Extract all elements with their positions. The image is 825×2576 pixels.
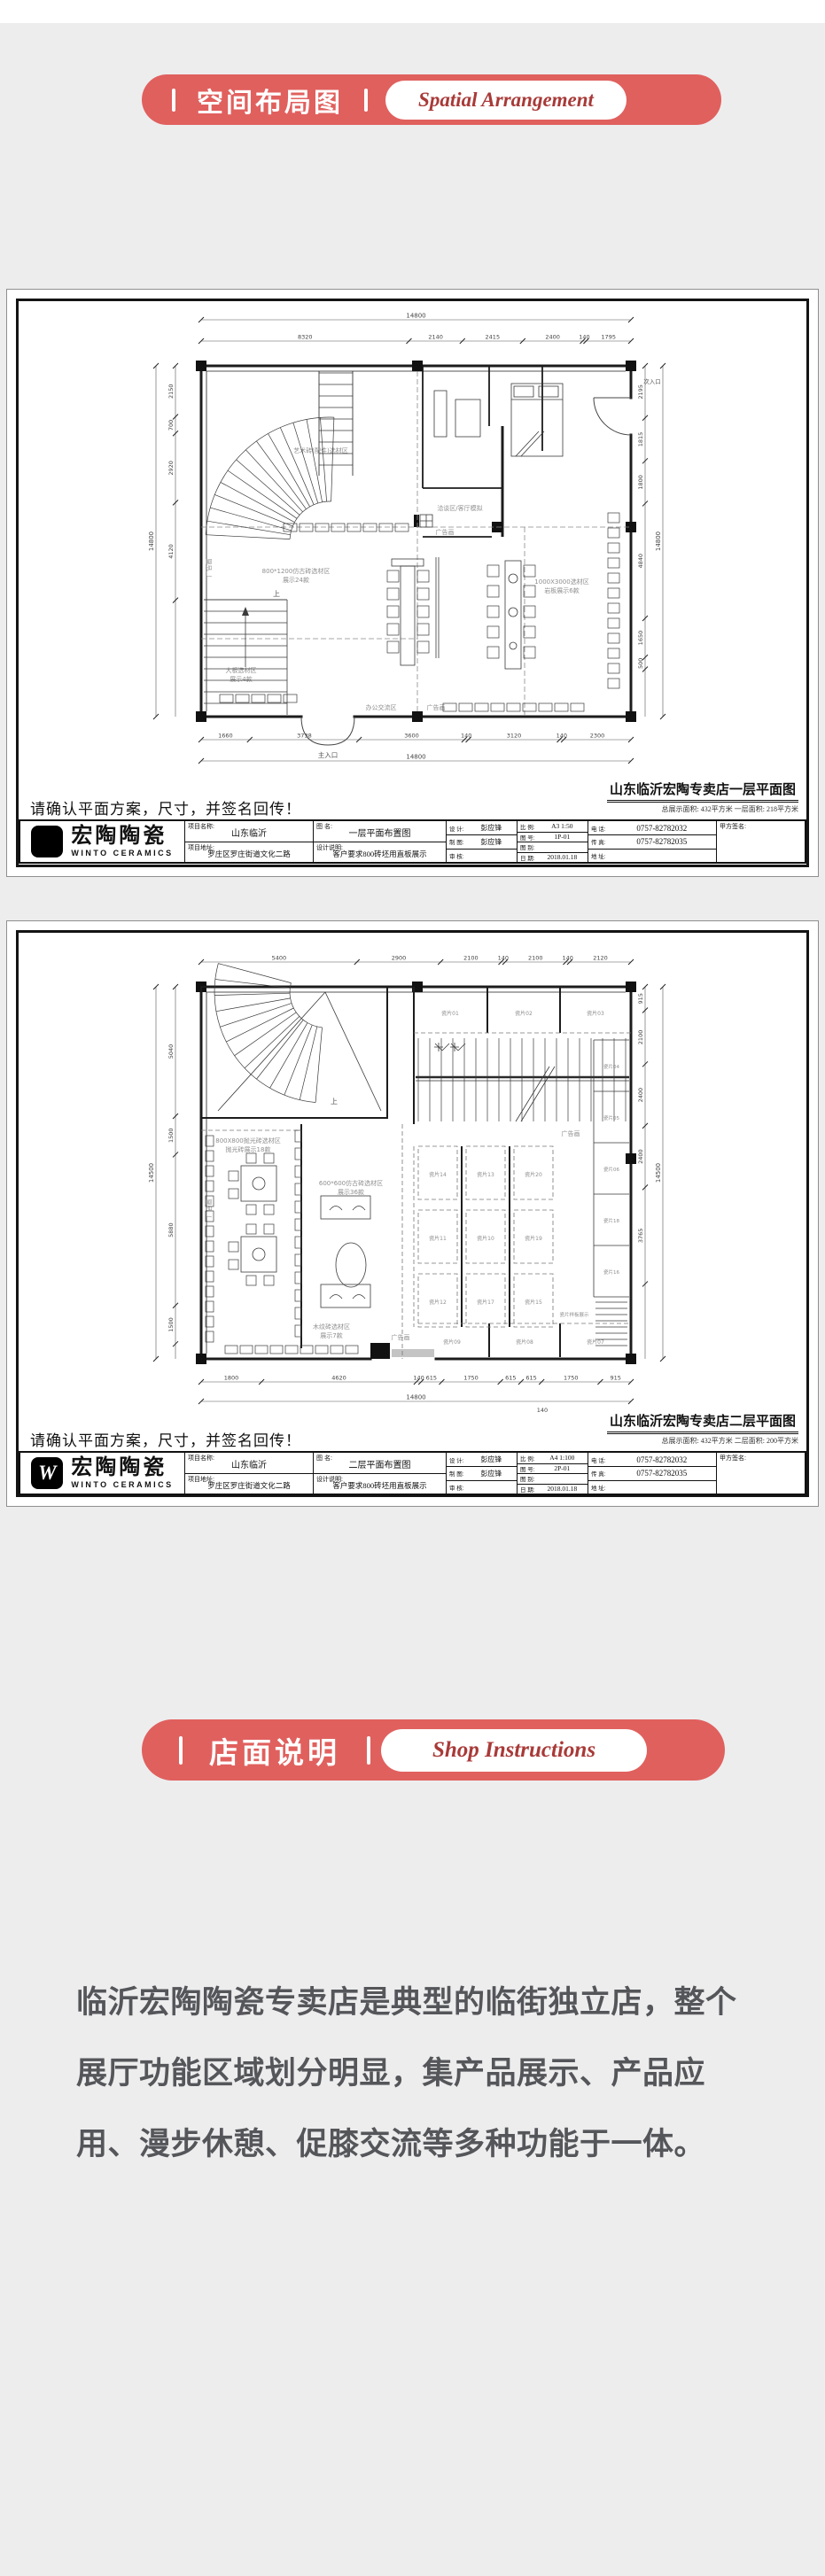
entry-label: 次入口: [643, 377, 661, 385]
display-racks: [225, 1346, 358, 1354]
sheet-no-value: 2P-01: [537, 1464, 588, 1472]
field-label: 审 核:: [449, 1483, 464, 1492]
zone-label: 800X800抛光砖选材区: [215, 1137, 281, 1144]
dim-label: 2415: [486, 334, 501, 341]
dim-label: 2100: [637, 1030, 644, 1045]
dim-label: 5400: [272, 955, 287, 962]
dimension-chain: 14500: [655, 984, 665, 1362]
company-name-en: WINTO CERAMICS: [71, 849, 173, 857]
shop-description: 临沂宏陶陶瓷专卖店是典型的临街独立店，整个 展厅功能区域划分明显，集产品展示、产…: [76, 1967, 776, 2180]
zone-label: 抛光砖展示18款: [226, 1145, 271, 1153]
field-label: 图 别:: [520, 842, 535, 851]
dimension-chain: 54002900210014021001402120: [198, 955, 634, 966]
zone-label: 大板选材区: [226, 666, 257, 674]
banner-title-en-pill: Shop Instructions: [381, 1729, 647, 1772]
walls: [201, 987, 631, 1359]
dim-label: 5040: [167, 1044, 175, 1059]
banner-title-zh: 空间布局图: [197, 81, 343, 120]
booth-label: 瓷片12: [429, 1299, 447, 1306]
dim-label: 2400: [637, 1088, 644, 1103]
field-label: 项目名称:: [188, 1454, 214, 1463]
zone-label: 瓷片样板展示: [559, 1311, 589, 1318]
dim-label: 14800: [406, 1394, 425, 1401]
dim-label: 4120: [167, 544, 175, 559]
banner-title-zh: 店面说明: [209, 1729, 340, 1772]
field-label: 制 图:: [449, 837, 464, 846]
dimension-chain: 9152100240024003765: [637, 984, 648, 1359]
booth-label: 瓷片20: [525, 1171, 542, 1178]
dim-label: 14800: [406, 313, 425, 320]
booth-label: 瓷片03: [587, 1010, 604, 1017]
dim-label: 4840: [637, 554, 644, 569]
field-label: 比 例:: [520, 822, 535, 831]
field-label: 地 址:: [591, 1483, 606, 1492]
entry-label: 主入口: [318, 750, 339, 759]
divider-bar: [179, 1736, 183, 1765]
booth-label: 瓷片14: [429, 1171, 447, 1178]
field-label: 电 话:: [591, 1455, 606, 1464]
field-label: 传 真:: [591, 1469, 606, 1478]
stair-fan: [214, 964, 322, 1103]
column: [370, 1343, 390, 1359]
dim-label: 2140: [428, 334, 443, 341]
date-value: 2018.01.18: [537, 1485, 588, 1493]
dim-label: 2195: [637, 384, 644, 400]
page: 空间布局图 Spatial Arrangement: [0, 0, 825, 2576]
dim-label: 14500: [655, 1163, 662, 1183]
dimension-chain: 14500: [148, 984, 159, 1362]
floor-plan-1: 艺术砖(配件)选材区 洽谈区/客厅模拟 广告画 800*1200仿古砖选材区 展…: [19, 302, 804, 786]
dim-label: 1815: [637, 432, 644, 447]
divider-bar: [172, 89, 175, 112]
company-name-zh: 宏陶陶瓷: [71, 826, 173, 847]
booth-label: 瓷片10: [477, 1235, 494, 1242]
dim-label: 2150: [167, 384, 175, 399]
top-white-strip: [0, 0, 825, 23]
zone-label: 广告画: [392, 1333, 410, 1341]
booth-label: 瓷片06: [603, 1166, 619, 1173]
drawing-subtitle: 总展示面积: 432平方米 一层面积: 218平方米: [607, 804, 798, 814]
dim-label: 500: [637, 658, 644, 669]
dim-label: 1750: [564, 1375, 579, 1382]
zone-label: 岩板展示6款: [544, 586, 579, 594]
booth-label: 瓷片15: [525, 1299, 542, 1306]
winto-logo-icon: W: [31, 1457, 63, 1489]
field-label: 图 号:: [520, 1464, 535, 1473]
field-label: 设 计:: [449, 824, 464, 833]
field-label: 设计说明:: [316, 1475, 343, 1484]
zone-label: 广告画: [427, 703, 446, 711]
dim-label: 1650: [637, 631, 644, 646]
field-label: 项目地址:: [188, 843, 214, 852]
confirm-note: 请确认平面方案，尺寸，并签名回传！: [30, 796, 301, 819]
zone-label: 洽谈区/客厅模拟: [437, 504, 482, 512]
field-label: 制 图:: [449, 1469, 464, 1478]
display-racks: [295, 1130, 301, 1337]
dimension-chain: 1800462014061517506156151750915: [198, 1375, 634, 1385]
doors: [301, 398, 631, 745]
field-label: 项目名称:: [188, 822, 214, 831]
drawing-title-block: 山东临沂宏陶专卖店一层平面图 总展示面积: 432平方米 一层面积: 218平方…: [607, 780, 798, 814]
field-label: 图 名:: [316, 1454, 332, 1463]
dim-label: 3738: [297, 733, 312, 740]
stair-treads: [595, 1302, 627, 1346]
dimension-chain: 21951815180048401650500: [637, 363, 648, 717]
fax-value: 0757-82782035: [608, 837, 716, 846]
stair-up-label: 上: [331, 1098, 338, 1106]
field-label: 项目地址:: [188, 1475, 214, 1484]
zone-label: 展示24款: [283, 576, 309, 584]
dim-label: 14800: [148, 531, 155, 551]
dim-label: 2300: [590, 733, 605, 740]
display-racks: [284, 524, 409, 531]
field-label: 设 计:: [449, 1455, 464, 1464]
dim-label: 1660: [218, 733, 233, 740]
booth-label: 瓷片11: [429, 1235, 447, 1242]
designer-value: 彭应锋: [466, 1455, 517, 1464]
description-line: 展厅功能区域划分明显，集产品展示、产品应: [76, 2038, 776, 2109]
dim-label: 8320: [298, 334, 313, 341]
booth-label: 瓷片02: [515, 1010, 533, 1017]
partition-dashed: [201, 371, 631, 717]
dim-label: 2120: [593, 955, 608, 962]
dimension-chain: 14800: [148, 363, 159, 719]
display-racks: [608, 513, 619, 688]
partition-dashed: [201, 1033, 631, 1359]
field-label: 传 真:: [591, 837, 606, 846]
field-label: 图 别:: [520, 1474, 535, 1483]
dimension-chain: 14800: [198, 1394, 634, 1405]
banner-shop-instructions: 店面说明 Shop Instructions: [142, 1719, 725, 1781]
dim-label: 1795: [601, 334, 616, 341]
drafter-value: 彭应锋: [466, 837, 517, 847]
chairs: [229, 1153, 274, 1285]
furniture: [218, 992, 629, 1307]
dim-label: 1500: [167, 1317, 175, 1332]
scale-value: A4 1:100: [537, 1454, 588, 1462]
interior-walls: [319, 366, 542, 537]
booth-label: 瓷片08: [516, 1338, 533, 1346]
winto-logo-icon: [31, 826, 63, 857]
dim-label: 4620: [331, 1375, 346, 1382]
phone-value: 0757-82782032: [608, 824, 716, 833]
phone-value: 0757-82782032: [608, 1455, 716, 1464]
drawing-subtitle: 总展示面积: 432平方米 二层面积: 200平方米: [607, 1436, 798, 1446]
zone-label: 600*600仿古砖选材区: [319, 1179, 383, 1187]
field-label: 甲方签名:: [720, 822, 746, 831]
dimension-chain: 14800: [198, 754, 634, 764]
divider-bar: [367, 1736, 370, 1765]
scale-value: A3 1:50: [537, 822, 588, 830]
dim-label: 2100: [463, 955, 479, 962]
dimension-chain: 5040150058801500: [167, 984, 178, 1359]
dim-label: 1500: [167, 1128, 175, 1143]
dim-label: 1750: [463, 1375, 479, 1382]
booth-label: 瓷片18: [603, 1217, 619, 1224]
dim-label: 14800: [406, 754, 425, 761]
display-racks: [443, 703, 584, 711]
dim-label: 915: [610, 1375, 620, 1382]
field-label: 图 名:: [316, 822, 332, 831]
dim-label: 140: [537, 1407, 548, 1414]
banner-spatial-arrangement: 空间布局图 Spatial Arrangement: [142, 74, 721, 125]
drawing-name-value: 一层平面布置图: [314, 821, 446, 842]
chairs: [387, 565, 535, 658]
zone-label: 展示4款: [230, 675, 252, 683]
dimension-chain: 83202140241524001401795: [198, 334, 634, 345]
stair-fan: [206, 417, 334, 539]
zone-label: 广告画: [562, 1129, 580, 1137]
booth-label: 瓷片09: [443, 1338, 461, 1346]
field-label: 审 核:: [449, 851, 464, 860]
drawing-sheet-floor1: 艺术砖(配件)选材区 洽谈区/客厅模拟 广告画 800*1200仿古砖选材区 展…: [7, 290, 818, 876]
zone-label: 1000X3000选材区: [534, 578, 588, 586]
tile-rack-stripes: [418, 1038, 626, 1121]
description-line: 用、漫步休憩、促膝交流等多种功能于一体。: [76, 2109, 776, 2180]
designer-value: 彭应锋: [466, 823, 517, 833]
dim-label: 14500: [148, 1163, 155, 1183]
dim-label: 5880: [167, 1222, 175, 1238]
zone-label: 广告画: [205, 1199, 213, 1218]
company-name-zh: 宏陶陶瓷: [71, 1457, 173, 1478]
dimension-chain: 16603738360014031201402300: [198, 733, 634, 743]
drawing-name-value: 二层平面布置图: [314, 1453, 446, 1473]
company-logo: W 宏陶陶瓷 WINTO CERAMICS: [20, 1453, 185, 1494]
drafter-value: 彭应锋: [466, 1469, 517, 1478]
dim-label: 700: [167, 420, 175, 431]
booth-label: 瓷片19: [525, 1235, 542, 1242]
dim-label: 615: [505, 1375, 516, 1382]
display-racks: [220, 694, 297, 702]
booth-label: 瓷片13: [477, 1171, 494, 1178]
zone-label: 广告画: [436, 528, 455, 536]
title-block: W 宏陶陶瓷 WINTO CERAMICS 项目名称: 山东临沂 项目地址: 罗…: [19, 1451, 806, 1495]
field-label: 设计说明:: [316, 843, 343, 852]
zone-label: 木纹砖选材区: [313, 1323, 350, 1331]
field-label: 日 期:: [520, 853, 535, 862]
field-label: 电 话:: [591, 824, 606, 833]
dim-label: 3765: [637, 1229, 644, 1244]
field-label: 图 号:: [520, 833, 535, 842]
zone-label: 办公交流区: [366, 703, 397, 711]
banner-title-en-pill: Spatial Arrangement: [385, 81, 627, 120]
dim-label: 2100: [528, 955, 543, 962]
dim-label: 2400: [637, 1149, 644, 1164]
dim-label: 2400: [545, 334, 560, 341]
field-label: 甲方签名:: [720, 1454, 746, 1463]
dim-label: 3600: [404, 733, 419, 740]
columns: [196, 361, 636, 722]
zone-label: 展示36款: [338, 1188, 364, 1196]
fax-value: 0757-82782035: [608, 1469, 716, 1478]
interior-walls: [201, 987, 560, 1357]
dim-label: 3120: [507, 733, 522, 740]
field-label: 比 例:: [520, 1454, 535, 1463]
company-name-en: WINTO CERAMICS: [71, 1480, 173, 1489]
dim-label: 14800: [655, 531, 662, 551]
divider-bar: [364, 89, 368, 112]
floor-plan-2: 瓷片01 瓷片02 瓷片03 瓷片14 瓷片13 瓷片20 瓷片11 瓷片10 …: [19, 934, 804, 1417]
dim-label: 1800: [224, 1375, 239, 1382]
drawing-sheet-floor2: 瓷片01 瓷片02 瓷片03 瓷片14 瓷片13 瓷片20 瓷片11 瓷片10 …: [7, 921, 818, 1506]
description-line: 临沂宏陶陶瓷专卖店是典型的临街独立店，整个: [76, 1967, 776, 2038]
dim-label: 1800: [637, 475, 644, 490]
confirm-note: 请确认平面方案，尺寸，并签名回传！: [30, 1428, 301, 1450]
dimension-chain: 14800: [655, 363, 665, 719]
zone-label: 展示7款: [320, 1331, 342, 1339]
booth-label: 瓷片04: [603, 1063, 619, 1070]
booth-label: 瓷片16: [603, 1269, 619, 1276]
dimension-chain: 14800: [198, 313, 634, 323]
drawing-title-block: 山东临沂宏陶专卖店二层平面图 总展示面积: 432平方米 二层面积: 200平方…: [607, 1411, 798, 1446]
dim-label: 615: [525, 1375, 536, 1382]
field-label: 地 址:: [591, 851, 606, 860]
dim-label: 2900: [392, 955, 407, 962]
columns: [196, 982, 636, 1364]
shelf-line: [416, 1077, 629, 1081]
booth-label: 瓷片01: [441, 1010, 459, 1017]
dimension-chain: 215070029204120: [167, 363, 178, 717]
title-block: 宏陶陶瓷 WINTO CERAMICS 项目名称: 山东临沂 项目地址: 罗庄区…: [19, 819, 806, 864]
dim-label: 915: [637, 993, 644, 1004]
furniture: [204, 384, 563, 715]
booth-label: 瓷片05: [603, 1114, 619, 1121]
drawing-title: 山东临沂宏陶专卖店一层平面图: [607, 780, 798, 803]
stair-up-label: 上: [273, 590, 280, 598]
drawing-title: 山东临沂宏陶专卖店二层平面图: [607, 1411, 798, 1434]
field-label: 日 期:: [520, 1485, 535, 1494]
booth-label: 瓷片17: [477, 1299, 494, 1306]
dim-label: 2920: [167, 461, 175, 476]
date-value: 2018.01.18: [537, 853, 588, 861]
zone-label: 广告画: [205, 559, 213, 578]
dim-label: 615: [426, 1375, 437, 1382]
walls: [201, 366, 631, 717]
zone-label: 800*1200仿古砖选材区: [262, 567, 331, 575]
sheet-no-value: 1P-01: [537, 833, 588, 841]
ad-panel: [392, 1349, 434, 1357]
company-logo: 宏陶陶瓷 WINTO CERAMICS: [20, 821, 185, 862]
